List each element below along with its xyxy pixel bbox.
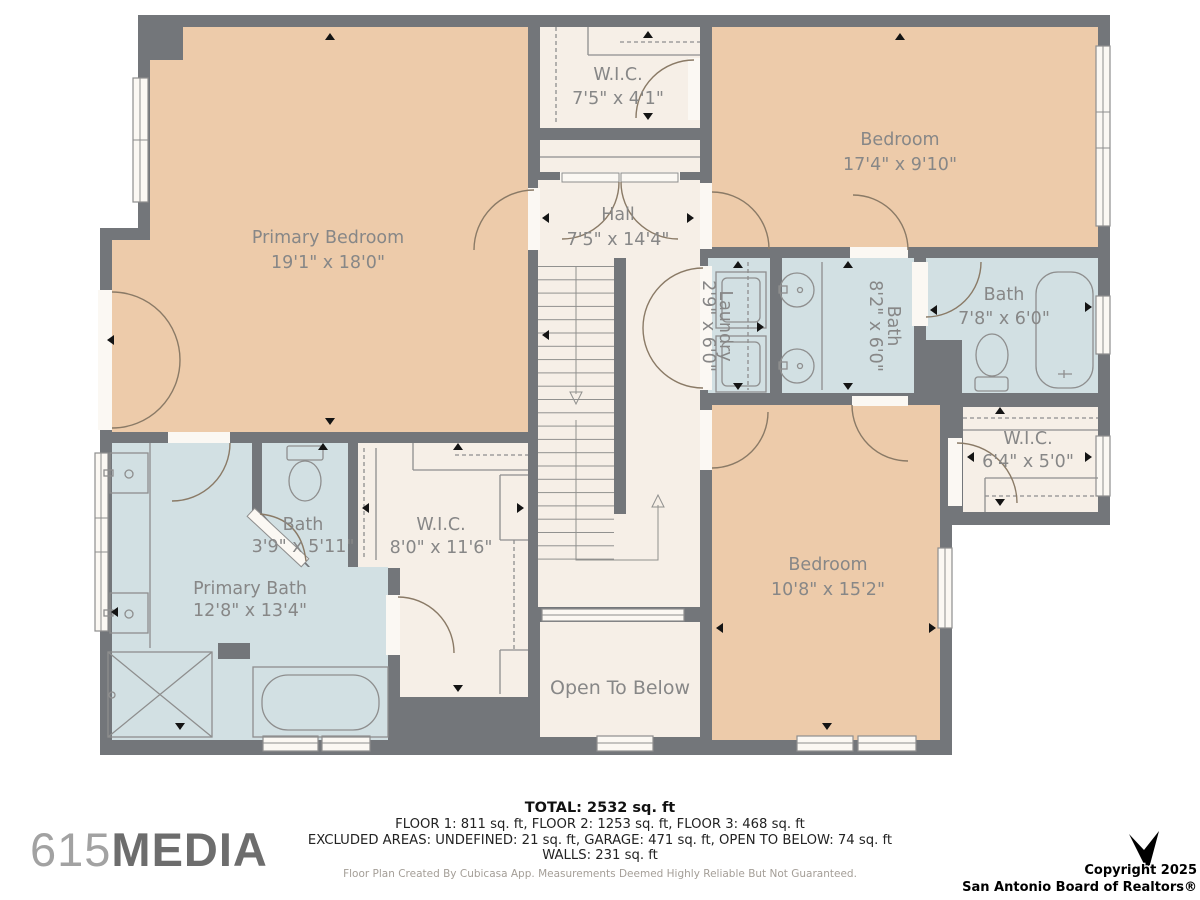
window [542,609,684,621]
area-summary: TOTAL: 2532 sq. ft FLOOR 1: 811 sq. ft, … [308,800,892,880]
window [322,736,370,751]
room-dims-wic-left: 8'0" x 11'6" [390,538,493,558]
room-dims-bedroom-top: 17'4" x 9'10" [843,155,957,175]
room-label-wic-left: W.I.C. [416,515,465,535]
window [1096,436,1110,496]
room-label-bath-small: Bath [283,515,324,535]
walls-area: WALLS: 231 sq. ft [542,848,658,863]
room-dims-wic-right: 6'4" x 5'0" [982,452,1074,472]
room-label-bath-right: Bath [984,285,1025,305]
room-label-hall: Hall [601,205,635,225]
window [858,736,916,751]
window [1096,46,1110,226]
logo-suffix: MEDIA [111,823,267,876]
wall-stub [218,643,250,659]
window [1096,296,1110,354]
room-label-open-to-below: Open To Below [550,677,690,699]
logo-615media: 615MEDIA [30,823,268,876]
copyright-block: Copyright 2025 San Antonio Board of Real… [962,831,1197,895]
window [263,736,318,751]
room-dims-hall: 7'5" x 14'4" [567,230,670,250]
copyright-line2: San Antonio Board of Realtors® [962,880,1197,895]
stair-divider-wall [614,258,626,514]
room-dims-wic-top: 7'5" x 4'1" [572,89,664,109]
window [797,736,853,751]
room-label-bedroom-top: Bedroom [860,130,939,150]
window [938,548,952,628]
room-label-wic-top: W.I.C. [593,65,642,85]
room-label-primary-bath: Primary Bath [193,579,307,599]
total-area: TOTAL: 2532 sq. ft [525,800,676,816]
logo-prefix: 615 [30,823,111,876]
disclaimer: Floor Plan Created By Cubicasa App. Meas… [343,868,857,880]
copyright-line1: Copyright 2025 [1084,863,1197,878]
room-label-bedroom-bottom: Bedroom [788,555,867,575]
floor-areas: FLOOR 1: 811 sq. ft, FLOOR 2: 1253 sq. f… [395,817,805,832]
window [95,453,108,631]
room-dims-bath-right: 7'8" x 6'0" [958,309,1050,329]
window [597,736,653,751]
floor-plan-image: Primary Bedroom 19'1" x 18'0" W.I.C. 7'5… [0,0,1200,900]
room-label-bath-center: Bath [883,306,903,347]
room-label-primary-bedroom: Primary Bedroom [252,228,404,248]
room-dims-primary-bedroom: 19'1" x 18'0" [271,253,385,273]
room-label-wic-right: W.I.C. [1003,429,1052,449]
excluded-areas: EXCLUDED AREAS: UNDEFINED: 21 sq. ft, GA… [308,833,892,848]
room-dims-bath-small: 3'9" x 5'11" [252,537,355,557]
room-dims-bedroom-bottom: 10'8" x 15'2" [771,580,885,600]
closet-strip [540,140,700,172]
room-dims-bath-center: 8'2" x 6'0" [865,280,885,372]
room-dims-laundry: 2'9" x 6'0" [698,280,718,372]
window [133,78,148,202]
room-dims-primary-bath: 12'8" x 13'4" [193,601,307,621]
